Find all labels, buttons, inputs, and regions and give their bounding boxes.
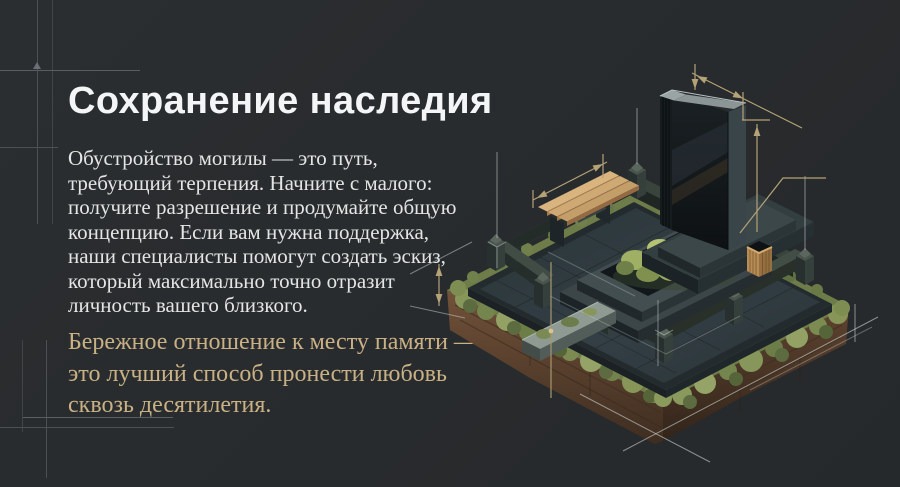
blueprint-line	[0, 147, 58, 148]
blueprint-arrow-icon	[33, 62, 41, 69]
blueprint-line	[22, 340, 23, 432]
blueprint-line	[0, 427, 174, 428]
blueprint-line	[37, 0, 38, 224]
blueprint-line	[52, 0, 53, 224]
blueprint-line	[0, 70, 140, 71]
wooden-planter-box	[747, 241, 772, 277]
blueprint-line	[46, 340, 47, 478]
memorial-plot-illustration	[410, 0, 900, 487]
slide: Сохранение наследия Обустройство могилы …	[0, 0, 900, 487]
